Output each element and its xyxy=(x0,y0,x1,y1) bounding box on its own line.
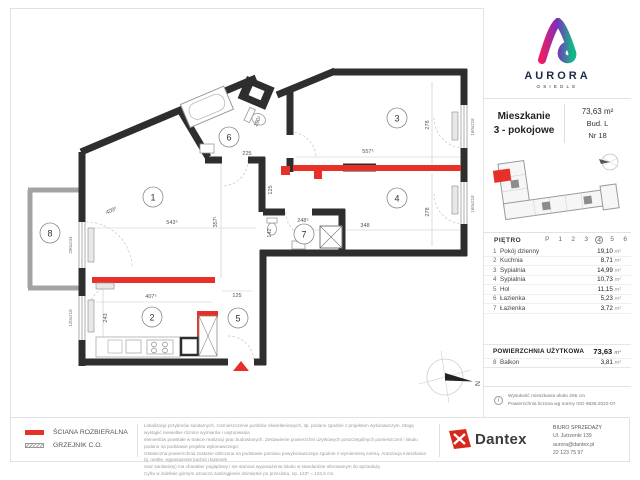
dim-bed3-height: 278 xyxy=(425,120,431,129)
room-label-1: 1 xyxy=(150,193,155,203)
minimap-compass xyxy=(599,154,618,170)
divider xyxy=(137,424,138,457)
dim-bath7-height: 142 xyxy=(267,228,273,237)
dantex-logo: Dantex xyxy=(448,428,527,450)
room-label-4: 4 xyxy=(394,194,399,204)
info-icon: i xyxy=(494,396,503,405)
table-row: 7Łazienka3,72 m² xyxy=(484,304,631,314)
kitchen-counter xyxy=(96,337,180,357)
table-row: 3Sypialnia14,99 m² xyxy=(484,266,631,276)
office-address: Ul. Jutrzenki 139 xyxy=(553,432,602,440)
office-email: aurora@dantex.pl xyxy=(553,441,602,449)
unit-title-block: Mieszkanie 3 - pokojowe 73,63 m² Bud. L … xyxy=(484,98,631,148)
legend-radiator-label: GRZEJNIK C.O. xyxy=(53,442,102,449)
brand-name: AURORA xyxy=(484,70,631,82)
brand-subtitle: OSIEDLE xyxy=(484,84,631,89)
unit-rooms: 3 - pokojowe xyxy=(484,124,564,138)
brand-block: AURORA OSIEDLE xyxy=(484,8,631,98)
legend: ŚCIANA ROZBIERALNA GRZEJNIK C.O. xyxy=(25,426,128,452)
aurora-logo-icon xyxy=(536,18,580,64)
dim-hall-width: 125 xyxy=(232,293,241,299)
sales-office-contact: BIURO SPRZEDAŻY Ul. Jutrzenki 139 aurora… xyxy=(553,424,602,457)
divider xyxy=(439,424,440,457)
floor-plan: N 1 2 3 4 5 6 7 8 543⁵ 357¹ 409⁵ 225 190… xyxy=(0,0,483,417)
floor-option-2: 2 xyxy=(569,236,577,244)
dim-living-diag: 409⁵ xyxy=(105,205,118,216)
unit-number: Nr 18 xyxy=(565,130,630,141)
unit-area: 73,63 m² xyxy=(565,106,630,118)
legend-red-wall-symbol xyxy=(25,430,44,435)
fridge xyxy=(181,338,198,355)
dim-bed4-width: 348 xyxy=(360,223,369,229)
compass: N xyxy=(419,351,480,403)
door-arcs xyxy=(86,118,464,362)
radiator-red-2 xyxy=(314,169,322,179)
window-label-kitchen: 120x218 xyxy=(68,309,73,327)
room-numbers: 1 2 3 4 5 6 7 8 xyxy=(40,108,407,328)
disclaimer-text: Lokalizację przyborów sanitarnych, rozmi… xyxy=(144,423,432,478)
building-minimap xyxy=(484,148,631,232)
floorplan-sheet: N 1 2 3 4 5 6 7 8 543⁵ 357¹ 409⁵ 225 190… xyxy=(0,0,640,480)
radiator-red-1 xyxy=(281,166,290,175)
dim-kitchen-width: 407⁵ xyxy=(145,293,156,300)
floor-selector: PIĘTRO P 1 2 3 4 5 6 xyxy=(484,232,631,247)
dim-bed4-height: 278 xyxy=(425,207,431,216)
room-label-5: 5 xyxy=(235,314,240,324)
dantex-logo-icon xyxy=(448,428,472,450)
table-row: 1Pokój dzienny19,10 m² xyxy=(484,247,631,257)
window-label-bed3: 160x218 xyxy=(470,118,475,136)
dim-kitchen-height: 243 xyxy=(103,313,109,322)
dim-living-width: 543⁵ xyxy=(166,219,177,226)
balcony-row: 8 Balkon 3,81 m² xyxy=(484,358,631,368)
sink-6 xyxy=(200,144,214,153)
room-label-3: 3 xyxy=(394,114,399,124)
minimap-unit-highlight xyxy=(493,169,512,183)
bathtub xyxy=(180,86,233,127)
window-label-balcony-door: 200x234 xyxy=(68,236,73,254)
dantex-wordmark: Dantex xyxy=(475,431,527,448)
info-panel: AURORA OSIEDLE Mieszkanie 3 - pokojowe 7… xyxy=(483,8,630,417)
floor-option-6: 6 xyxy=(621,236,629,244)
room-label-6: 6 xyxy=(226,133,231,143)
unit-building: Bud. L xyxy=(565,118,630,129)
legend-red-wall-label: ŚCIANA ROZBIERALNA xyxy=(53,429,128,436)
office-phone: 22 123 75 97 xyxy=(553,449,602,457)
dim-bed3-width: 557⁵ xyxy=(362,148,373,155)
floor-option-5: 5 xyxy=(608,236,616,244)
table-row: 4Sypialnia10,73 m² xyxy=(484,276,631,286)
shower-7 xyxy=(320,226,342,248)
compass-n-label: N xyxy=(473,381,480,386)
table-row: 2Kuchnia8,71 m² xyxy=(484,257,631,267)
window-label-bed4: 160x218 xyxy=(470,195,475,213)
office-label: BIURO SPRZEDAŻY xyxy=(553,424,602,432)
area-summary: POWIERZCHNIA UŻYTKOWA 73,63 m² 8 Balkon … xyxy=(484,344,631,368)
dim-corridor-width: 125 xyxy=(268,185,274,194)
rooms-table: 1Pokój dzienny19,10 m² 2Kuchnia8,71 m² 3… xyxy=(484,247,631,314)
dim-bath6-width: 225 xyxy=(242,151,251,157)
room-label-2: 2 xyxy=(149,313,154,323)
note-norm: Powierzchnia liczona wg normy ISO 9836:2… xyxy=(508,401,615,409)
table-row: 6Łazienka5,23 m² xyxy=(484,295,631,305)
dim-living-height: 357¹ xyxy=(213,216,219,227)
floor-option-4-selected: 4 xyxy=(595,236,603,244)
footer-strip: ŚCIANA ROZBIERALNA GRZEJNIK C.O. Lokaliz… xyxy=(10,417,630,462)
room-label-7: 7 xyxy=(301,230,306,240)
summary-label: POWIERZCHNIA UŻYTKOWA xyxy=(484,348,585,355)
unit-type: Mieszkanie xyxy=(484,110,564,124)
wardrobe xyxy=(199,316,217,356)
notes-block: i Wysokość mieszkania około 265 cm Powie… xyxy=(484,386,631,414)
floor-option-1: 1 xyxy=(556,236,564,244)
floor-option-p: P xyxy=(543,236,551,244)
walls xyxy=(79,69,467,366)
floor-selector-label: PIĘTRO xyxy=(494,237,521,244)
legend-radiator-symbol xyxy=(25,443,44,448)
floor-option-3: 3 xyxy=(582,236,590,244)
note-height: Wysokość mieszkania około 265 cm xyxy=(508,393,615,401)
entrance-arrow xyxy=(233,361,249,371)
dim-bath7-width: 248⁵ xyxy=(297,217,308,224)
table-row: 5Hol11,15 m² xyxy=(484,285,631,295)
room-label-8: 8 xyxy=(47,229,52,239)
